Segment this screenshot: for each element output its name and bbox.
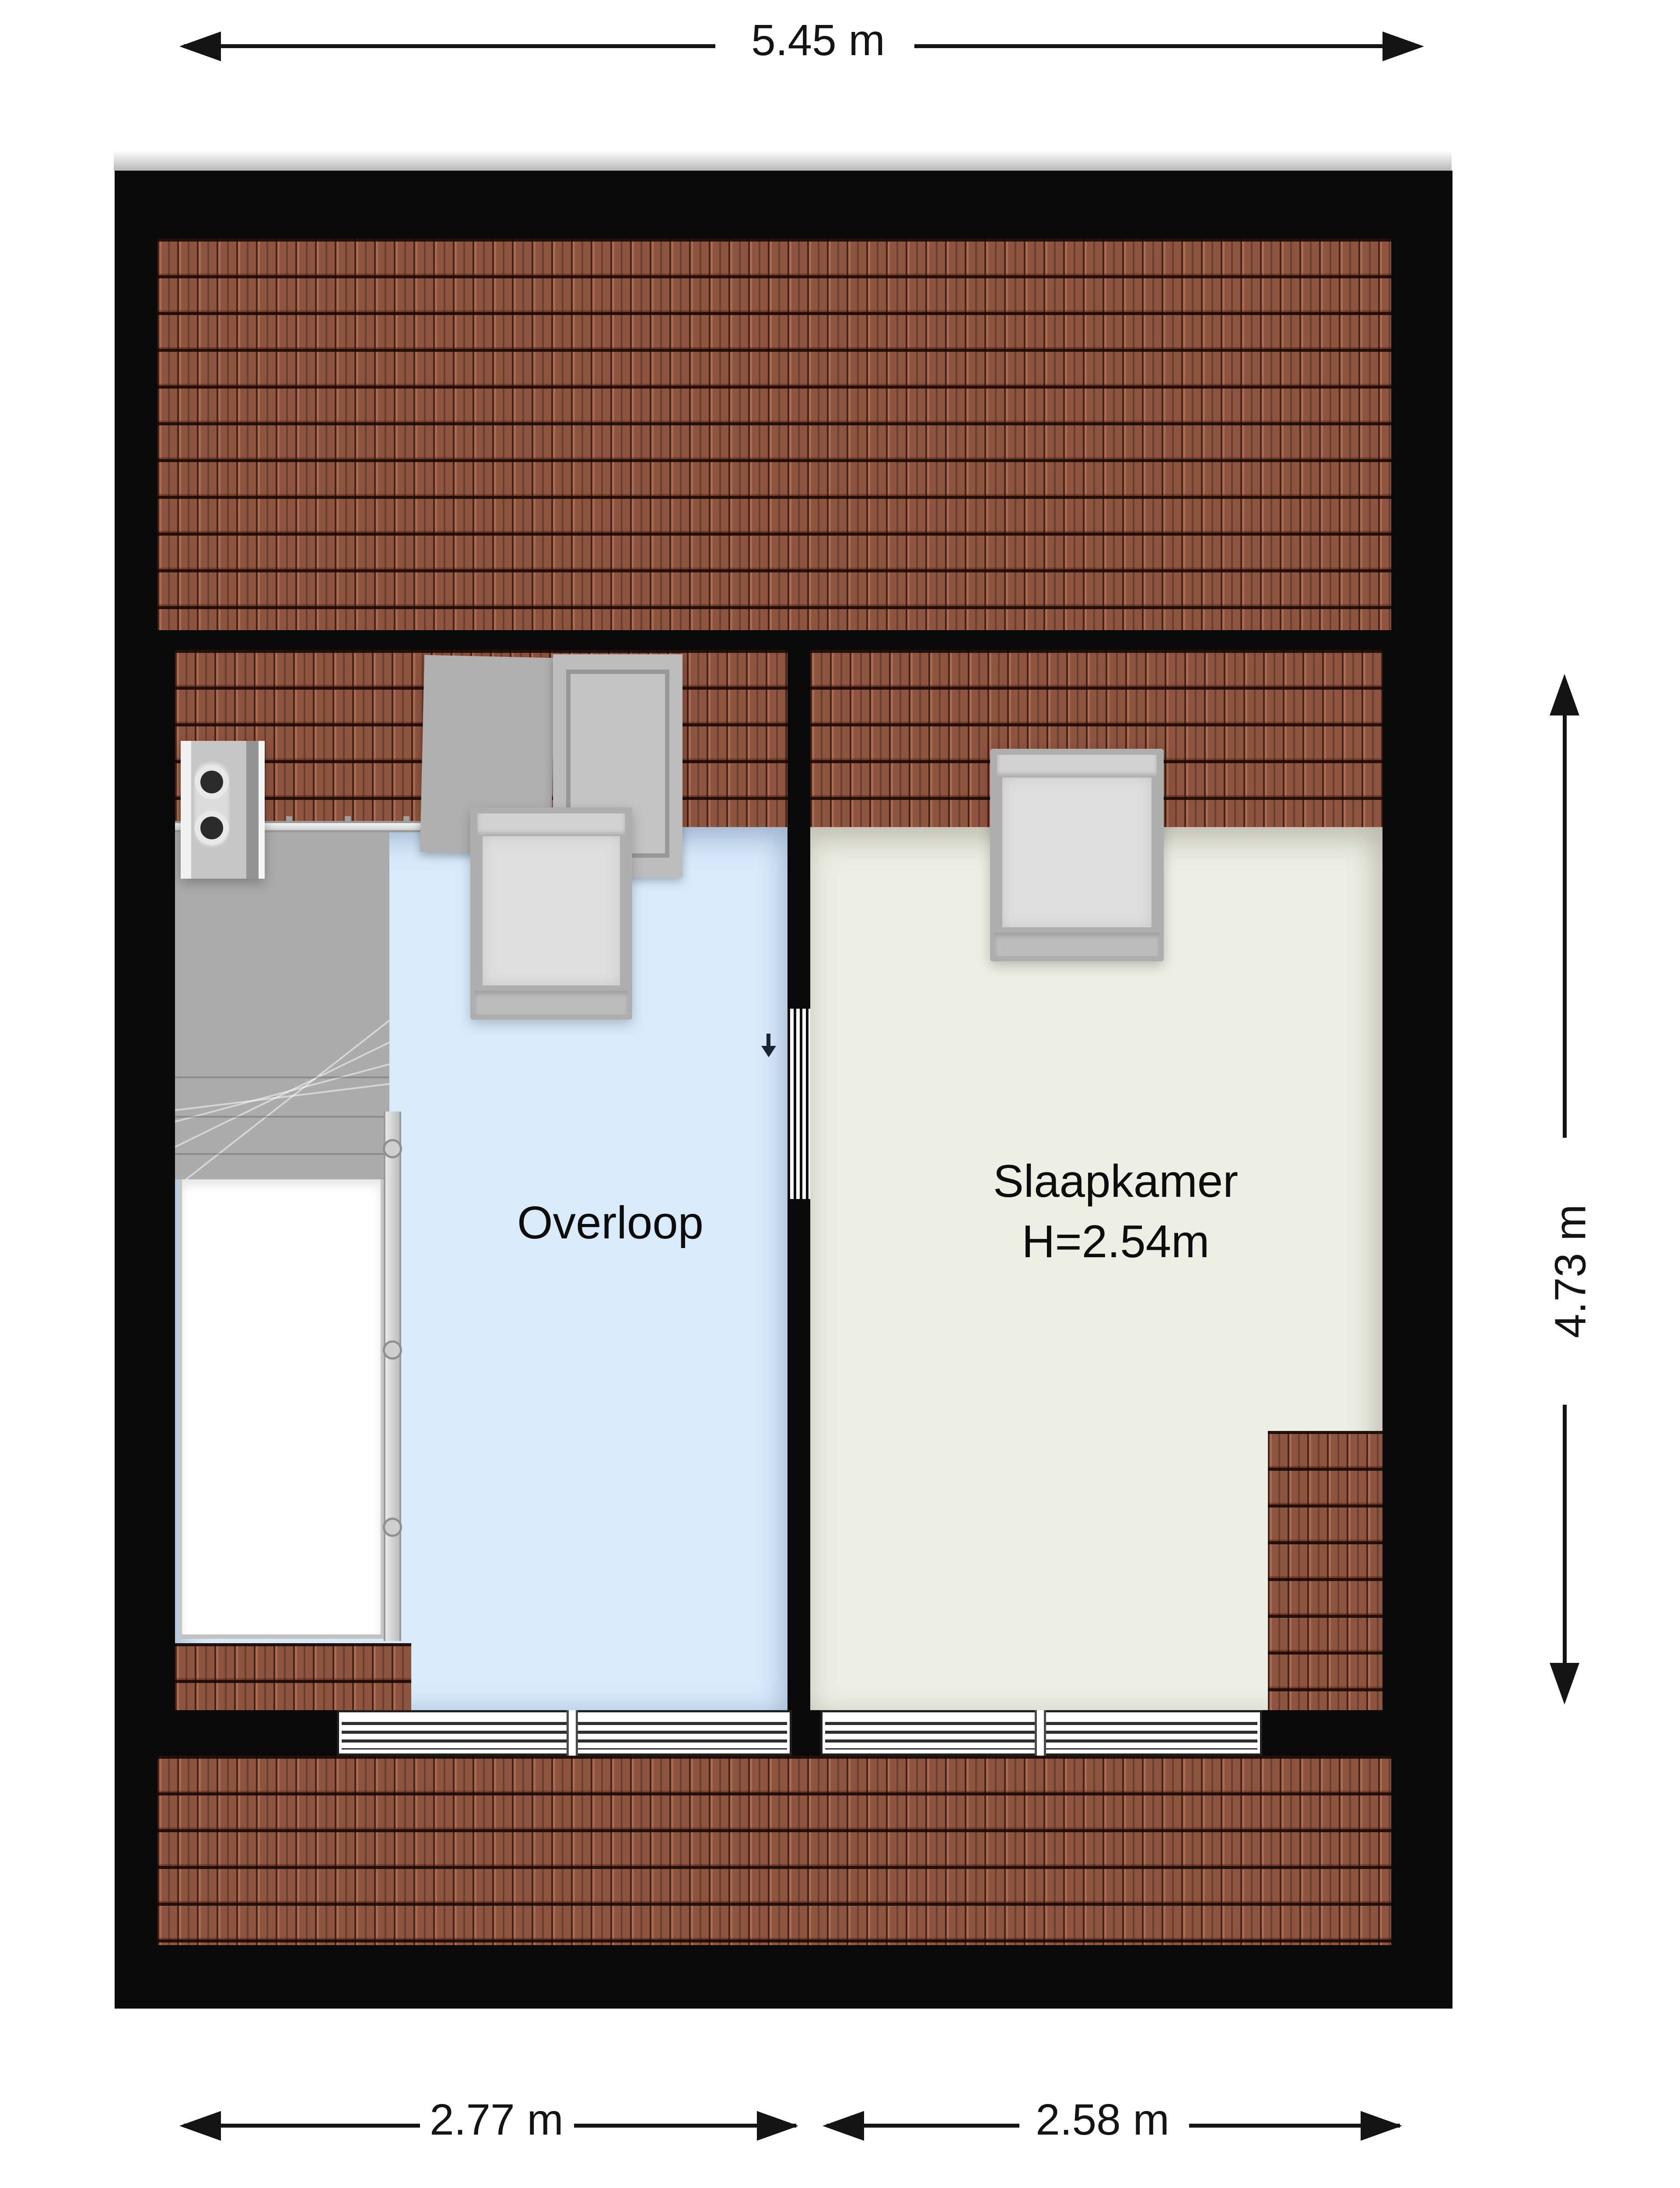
arrowhead-down-icon: [1550, 1663, 1579, 1704]
arrowhead-right-icon: [1382, 32, 1424, 61]
bed-headboard: [477, 813, 625, 836]
door-opening: [787, 1009, 810, 1199]
bed-mattress: [483, 836, 620, 985]
window-overloop: [337, 1710, 792, 1756]
vent-duct-icon: [195, 765, 229, 799]
roof-tile-band-bottom: [157, 1756, 1391, 1945]
handrail-baluster-icon: [383, 1340, 402, 1360]
bed-footboard: [994, 933, 1159, 956]
roof-slope-notch-slaapkamer: [1268, 1431, 1382, 1710]
bed-mattress: [1002, 778, 1151, 927]
winder-staircase: [175, 831, 389, 1179]
stairwell-void: [179, 1179, 384, 1639]
dimension-top-label: 5.45 m: [682, 15, 954, 66]
window-mullion: [567, 1710, 578, 1756]
floorplan-canvas: Overloop Slaapkamer H=2.54m: [115, 171, 1452, 2009]
handrail: [384, 1112, 401, 1641]
dimension-line: [914, 44, 1385, 48]
dimension-bottom-left-label: 2.77 m: [365, 2095, 628, 2145]
stair-tread-line: [175, 1076, 389, 1078]
window-mullion: [1035, 1710, 1046, 1756]
mechanical-ventilation-unit: [181, 741, 265, 879]
handrail-baluster-icon: [383, 1518, 402, 1537]
roof-tile-band-top: [157, 238, 1391, 630]
bed-slaapkamer: [990, 749, 1164, 961]
room-height-label-slaapkamer: H=2.54m: [1022, 1213, 1210, 1271]
stair-tread-line: [175, 1153, 389, 1155]
arrowhead-right-icon: [1361, 2111, 1402, 2141]
dimension-line: [1563, 711, 1567, 1138]
handrail-baluster-icon: [383, 1139, 402, 1158]
dimension-bottom-right-label: 2.58 m: [971, 2095, 1234, 2145]
entry-arrow-icon: [766, 1034, 770, 1047]
window-glazing: [342, 1716, 787, 1750]
floorplan-page: { "floorplan": { "title": "attic floor p…: [0, 0, 1680, 2188]
stair-tread-line: [175, 1020, 389, 1179]
room-label-overloop: Overloop: [517, 1194, 703, 1252]
dimension-line: [1563, 1405, 1567, 1667]
bed-headboard: [997, 755, 1157, 778]
arrowhead-right-icon: [757, 2111, 798, 2141]
vent-duct-icon: [195, 811, 229, 845]
roof-slope-patch-overloop: [175, 1643, 411, 1710]
bed-overloop: [470, 807, 632, 1020]
room-label-slaapkamer: Slaapkamer: [993, 1152, 1238, 1211]
entry-arrow-icon: [761, 1046, 776, 1057]
window-slaapkamer: [820, 1710, 1262, 1756]
stair-tread-line: [175, 1116, 389, 1118]
dimension-right-label: 4.73 m: [1546, 1204, 1596, 1338]
bed-footboard: [475, 991, 628, 1014]
arrowhead-up-icon: [1550, 674, 1579, 715]
stair-tread-line: [175, 1063, 389, 1138]
dimension-line: [184, 44, 715, 48]
